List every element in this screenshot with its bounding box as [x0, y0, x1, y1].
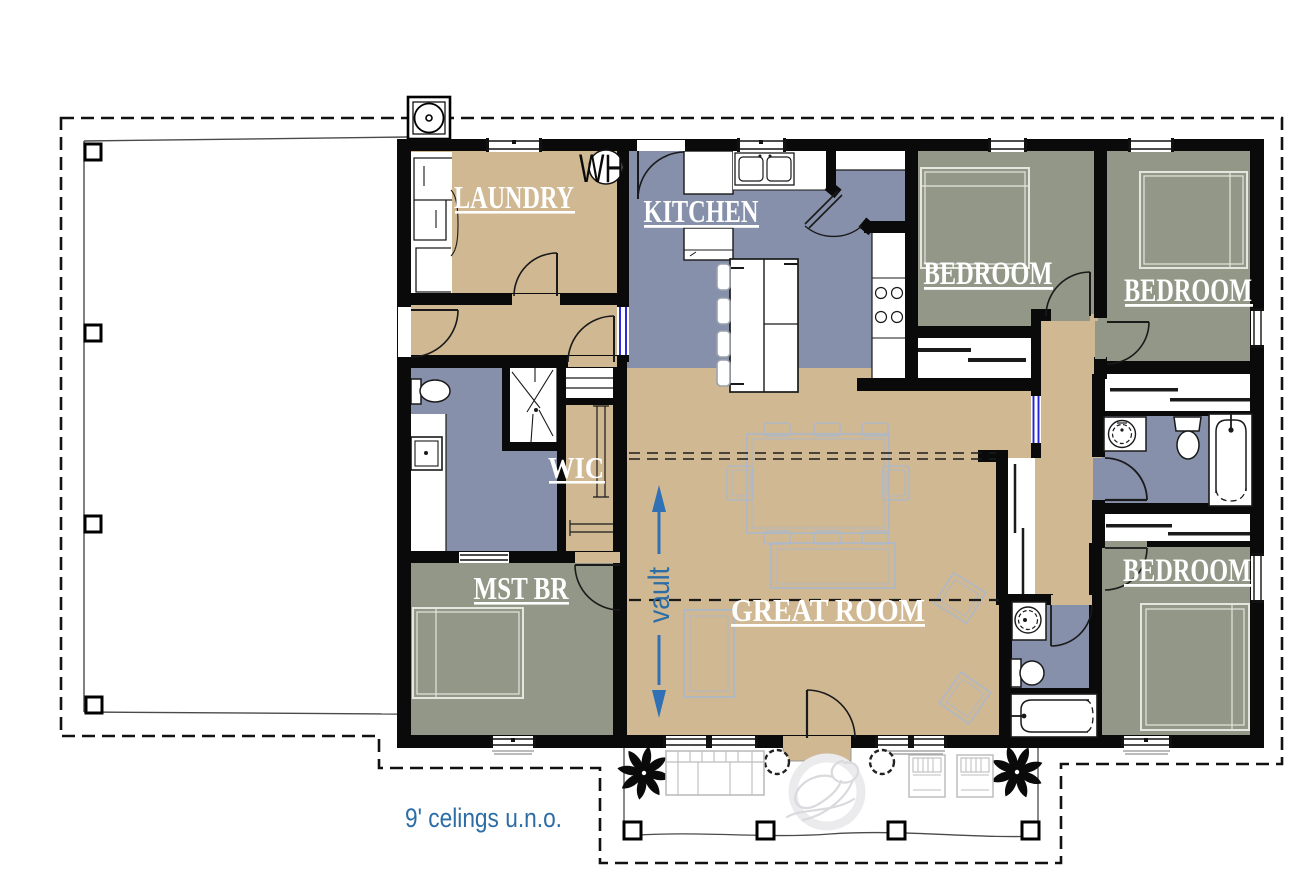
svg-text:LAUNDRY: LAUNDRY	[454, 179, 574, 215]
svg-text:KITCHEN: KITCHEN	[644, 193, 759, 229]
svg-text:9' celings u.n.o.: 9' celings u.n.o.	[405, 803, 562, 833]
svg-text:WIC: WIC	[548, 450, 604, 485]
svg-text:MST BR: MST BR	[474, 570, 570, 606]
svg-text:BEDROOM: BEDROOM	[924, 256, 1053, 292]
svg-text:GREAT ROOM: GREAT ROOM	[731, 592, 925, 628]
svg-text:BEDROOM: BEDROOM	[1124, 273, 1252, 309]
svg-text:vault: vault	[643, 566, 676, 623]
svg-text:BEDROOM: BEDROOM	[1123, 553, 1251, 589]
svg-text:WH: WH	[579, 147, 624, 191]
